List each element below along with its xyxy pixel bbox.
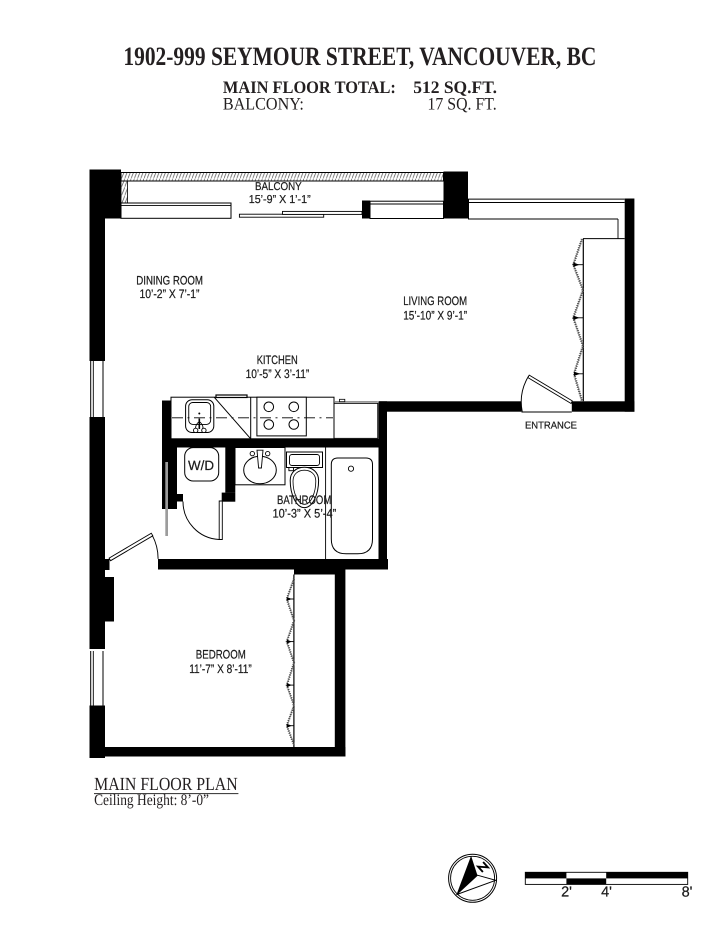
svg-text:1902-999 SEYMOUR STREET, VANCO: 1902-999 SEYMOUR STREET, VANCOUVER, BC [123,41,596,71]
svg-text:KITCHEN: KITCHEN [257,353,298,367]
svg-text:15’-9” X 1’-1”: 15’-9” X 1’-1” [249,194,311,206]
svg-text:8': 8' [682,885,693,901]
svg-text:BEDROOM: BEDROOM [196,647,246,661]
svg-text:15’-10” X 9’-1”: 15’-10” X 9’-1” [403,308,467,322]
svg-text:11’-7” X 8’-11”: 11’-7” X 8’-11” [189,662,252,676]
svg-text:10’-2” X 7’-1”: 10’-2” X 7’-1” [140,287,200,301]
svg-text:17 SQ. FT.: 17 SQ. FT. [428,94,497,114]
svg-text:LIVING ROOM: LIVING ROOM [403,294,467,308]
svg-text:DINING ROOM: DINING ROOM [136,274,203,288]
svg-text:10’-3” X 5’-4”: 10’-3” X 5’-4” [273,507,337,521]
svg-text:ENTRANCE: ENTRANCE [525,420,577,431]
svg-text:BATHROOM: BATHROOM [277,493,331,507]
svg-text:4': 4' [601,885,612,901]
svg-text:BALCONY: BALCONY [255,181,302,193]
svg-text:2': 2' [561,885,572,901]
svg-text:10’-5” X 3’-11”: 10’-5” X 3’-11” [246,367,310,381]
svg-text:W/D: W/D [188,458,214,473]
svg-text:BALCONY:: BALCONY: [223,94,304,114]
svg-text:Ceiling Height: 8’-0”: Ceiling Height: 8’-0” [94,792,209,809]
